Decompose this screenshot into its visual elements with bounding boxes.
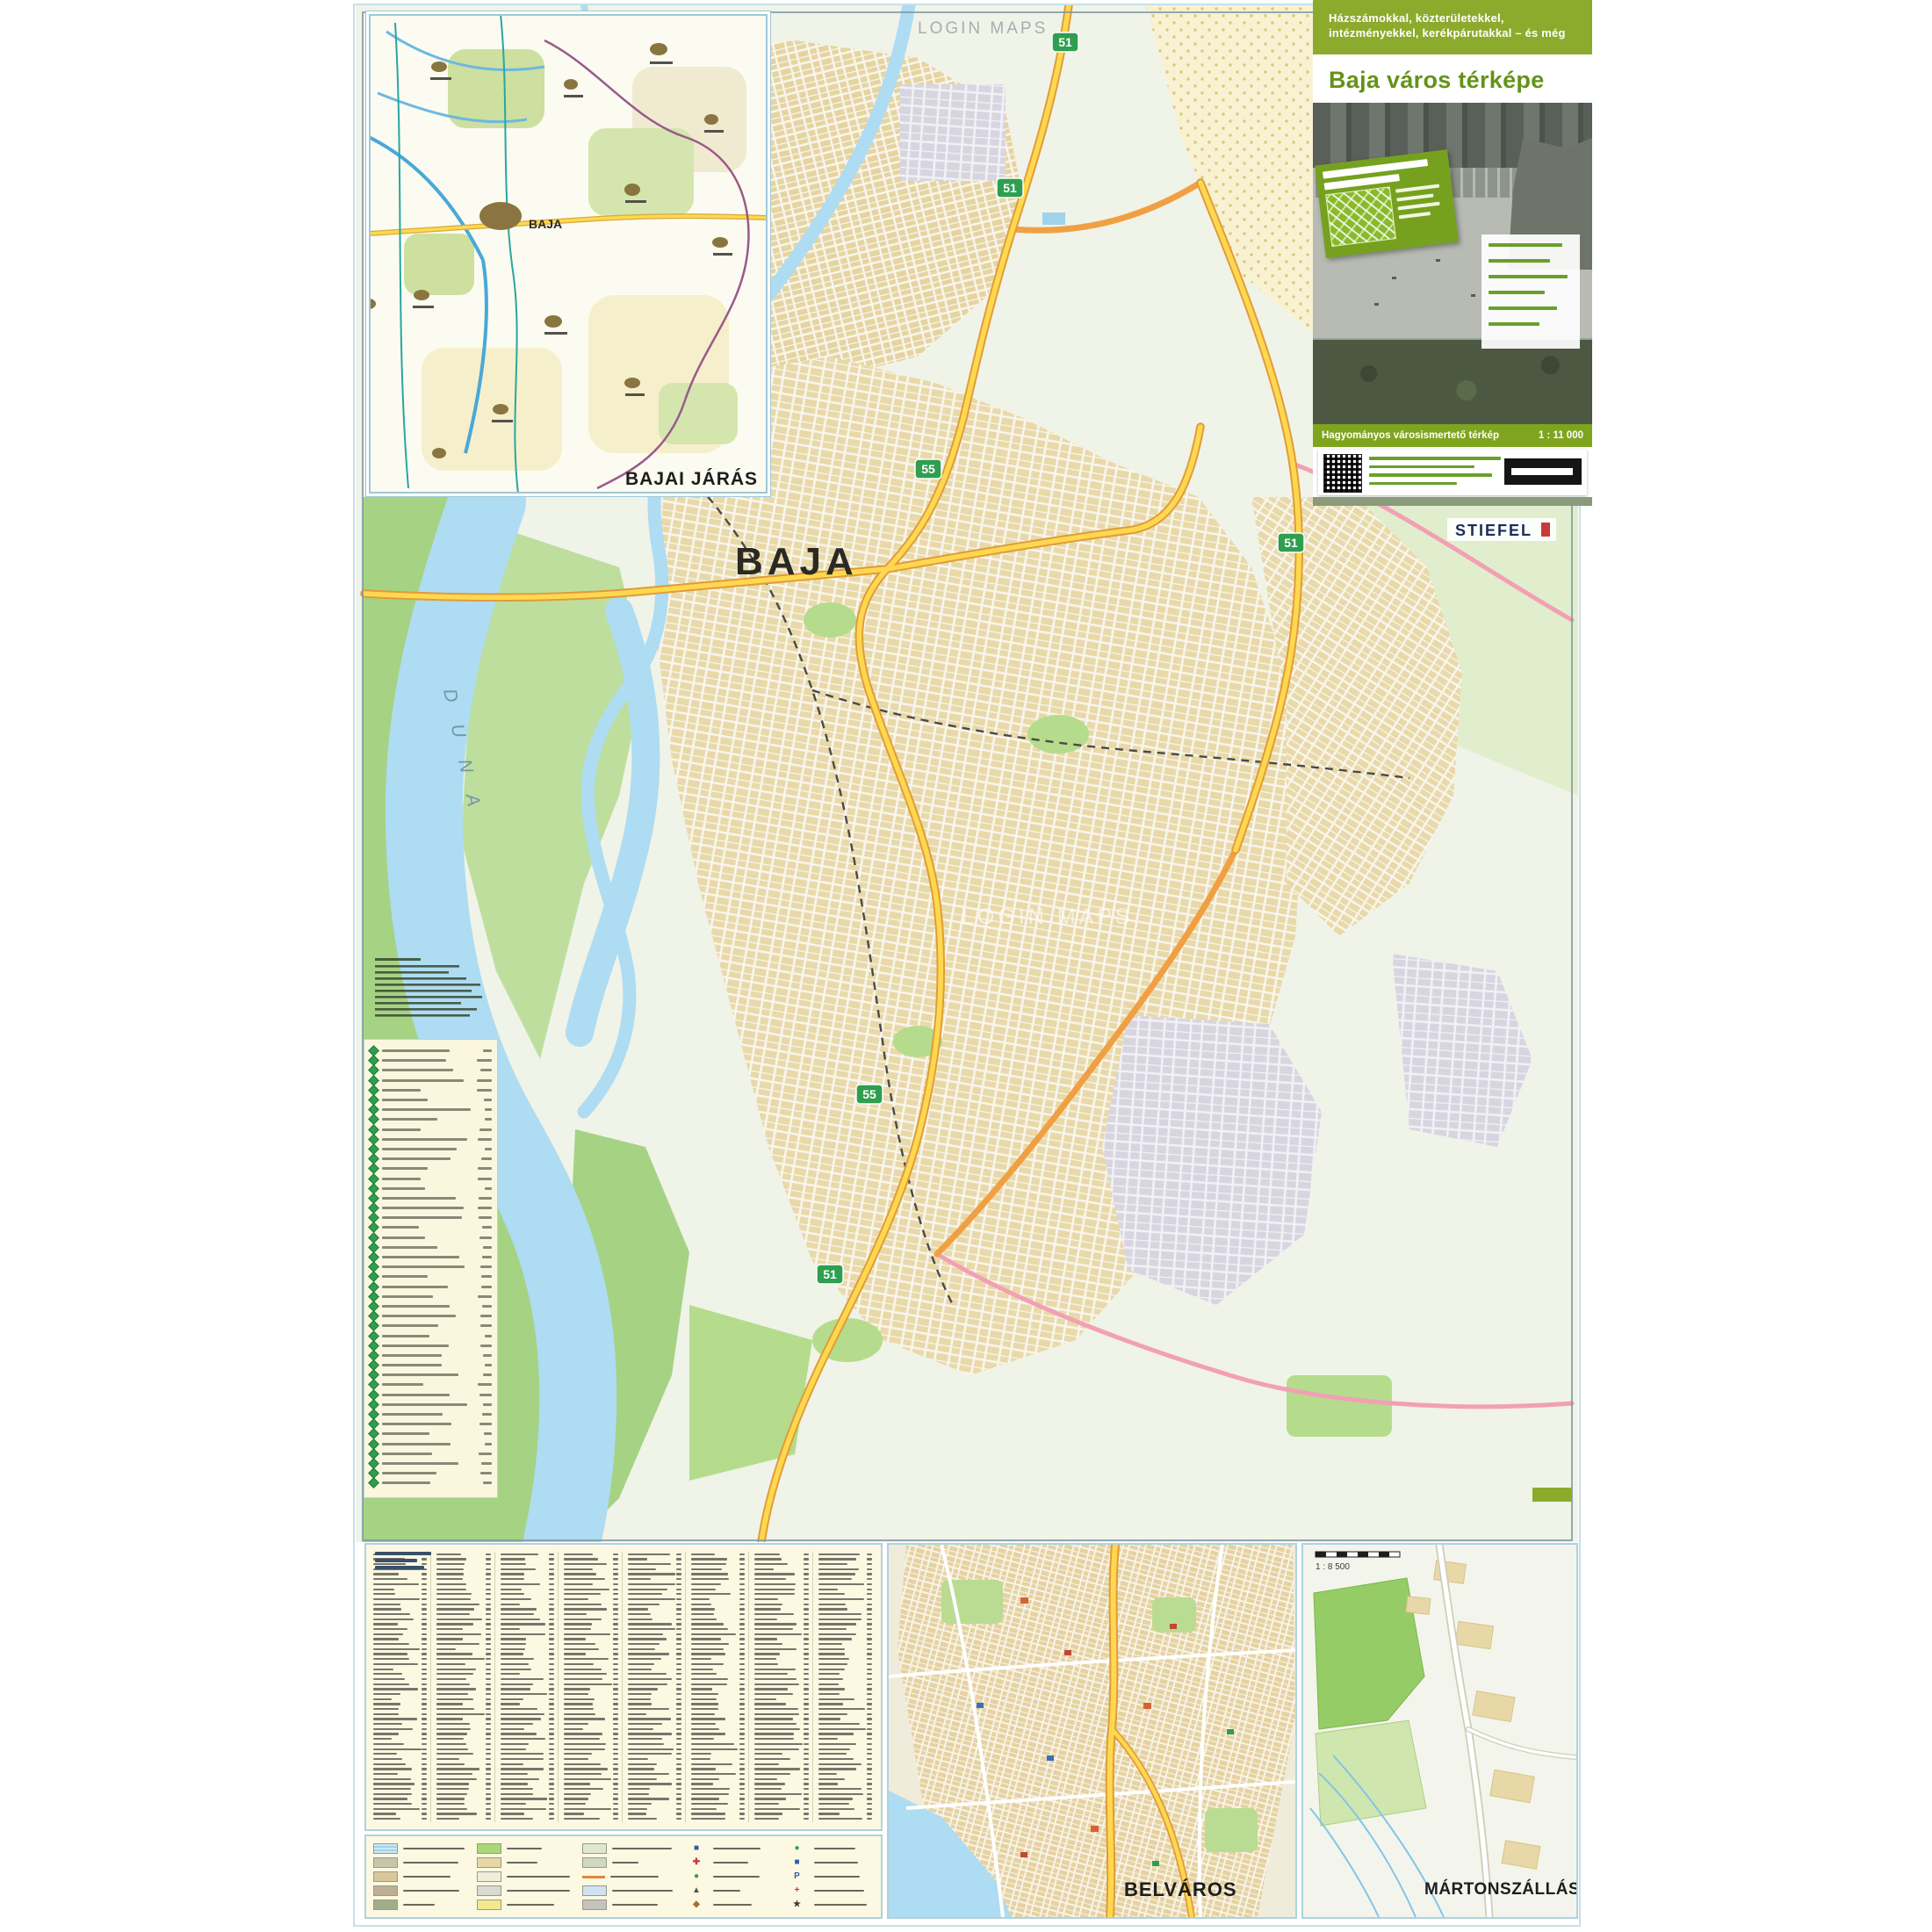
poi-grid-ref — [478, 1295, 492, 1298]
legend-area-swatch — [373, 1871, 398, 1882]
poi-row — [370, 1459, 492, 1468]
publisher-logo: STIEFEL — [1447, 518, 1556, 541]
poi-name-bar — [382, 1432, 429, 1435]
poi-row — [370, 1429, 492, 1438]
index-line — [691, 1816, 745, 1821]
index-column — [501, 1552, 559, 1822]
poi-name-bar — [382, 1118, 437, 1121]
poi-name-bar — [382, 1226, 419, 1229]
poi-row — [370, 1419, 492, 1429]
poi-grid-ref — [479, 1423, 492, 1425]
legend-row: ✚ — [685, 1856, 774, 1869]
index-column — [754, 1552, 812, 1822]
legend-row — [373, 1856, 465, 1869]
legend-label-bar — [612, 1848, 672, 1850]
poi-name-bar — [382, 1413, 443, 1416]
poi-rows — [370, 1046, 492, 1488]
poi-grid-ref — [478, 1167, 492, 1170]
legend-label-bar — [403, 1890, 459, 1892]
promo-map-motif — [1325, 186, 1396, 247]
legend-label-bar — [507, 1876, 570, 1878]
poi-grid-ref — [479, 1236, 492, 1239]
poi-row — [370, 1478, 492, 1488]
aerial-photo — [1313, 103, 1592, 424]
legend-row — [477, 1871, 570, 1883]
legend-row — [477, 1856, 570, 1869]
poi-grid-ref — [477, 1089, 492, 1092]
legend-label-bar — [403, 1848, 465, 1850]
publisher-logo-black — [1504, 458, 1582, 485]
legend-label-bar — [713, 1876, 760, 1878]
legend-area-swatch — [582, 1900, 607, 1910]
belvaros-inset-map: BELVÁROS — [889, 1545, 1295, 1917]
index-column — [818, 1552, 876, 1822]
poi-grid-ref — [481, 1286, 492, 1288]
legend-symbol-icon: ● — [685, 1872, 708, 1881]
poi-grid-ref — [479, 1216, 492, 1219]
poi-name-bar — [382, 1207, 464, 1209]
poi-name-bar — [382, 1423, 451, 1425]
poi-name-bar — [382, 1364, 442, 1366]
index-line — [373, 1816, 427, 1821]
legend-row — [582, 1885, 673, 1897]
poi-name-bar — [382, 1246, 437, 1249]
poi-row — [370, 1203, 492, 1213]
poi-grid-ref — [481, 1462, 492, 1465]
street-index-columns — [373, 1552, 876, 1822]
poi-grid-ref — [483, 1373, 492, 1376]
poi-row — [370, 1311, 492, 1321]
legend-group — [582, 1842, 673, 1911]
poi-row — [370, 1065, 492, 1075]
poi-grid-ref — [480, 1069, 492, 1071]
scale-value: 1 : 11 000 — [1539, 424, 1583, 447]
map-product-image: 51 51 55 51 55 51 — [0, 0, 1932, 1932]
legend-symbol-icon: ● — [786, 1844, 809, 1853]
poi-grid-ref — [479, 1394, 492, 1396]
watermark-text-2: LOGIN MAPS — [962, 905, 1134, 929]
poi-name-bar — [382, 1138, 467, 1141]
poi-grid-ref — [483, 1481, 492, 1484]
poi-grid-ref — [479, 1453, 492, 1455]
poi-name-bar — [382, 1148, 457, 1150]
legend-row: P — [786, 1871, 875, 1883]
poi-row — [370, 1105, 492, 1114]
poi-row — [370, 1114, 492, 1124]
legend-symbol-icon: ■ — [786, 1858, 809, 1867]
poi-name-bar — [382, 1256, 459, 1258]
index-line — [754, 1816, 808, 1821]
legend-row — [477, 1885, 570, 1897]
legend-group — [477, 1842, 570, 1911]
poi-grid-ref — [477, 1059, 492, 1062]
poi-grid-ref — [482, 1413, 492, 1416]
legend-row — [373, 1885, 465, 1897]
index-column — [436, 1552, 494, 1822]
poi-grid-ref — [480, 1324, 492, 1327]
street-index-header — [375, 1552, 436, 1573]
poi-grid-ref — [480, 1315, 492, 1317]
poi-name-bar — [382, 1354, 442, 1357]
regional-inset-title: BAJAI JÁRÁS — [625, 469, 758, 489]
legend-area-swatch — [373, 1885, 398, 1896]
legend-label-bar — [507, 1848, 542, 1850]
poi-row — [370, 1164, 492, 1173]
poi-grid-ref — [480, 1344, 492, 1347]
poi-grid-ref — [485, 1118, 492, 1121]
poi-row — [370, 1243, 492, 1252]
legend-symbol-icon: P — [786, 1872, 809, 1881]
poi-row — [370, 1173, 492, 1183]
legend-label-bar — [507, 1862, 537, 1864]
poi-row — [370, 1085, 492, 1095]
legend-label-bar — [507, 1890, 570, 1892]
legend-label-bar — [713, 1862, 748, 1864]
poi-row — [370, 1370, 492, 1380]
poi-name-bar — [382, 1099, 428, 1101]
legend-row — [477, 1899, 570, 1911]
index-column — [628, 1552, 686, 1822]
legend-row — [582, 1871, 673, 1883]
poi-name-bar — [382, 1373, 458, 1376]
route-shield: 51 — [1278, 533, 1304, 552]
poi-row — [370, 1076, 492, 1085]
poi-grid-ref — [482, 1305, 492, 1308]
poi-grid-ref — [483, 1246, 492, 1249]
poi-name-bar — [382, 1403, 467, 1406]
legend-label-bar — [403, 1904, 435, 1907]
poi-grid-ref — [478, 1178, 492, 1180]
legend-label-bar — [507, 1904, 554, 1907]
map-title: Baja város térképe — [1329, 67, 1583, 94]
legend-label-bar — [713, 1848, 761, 1850]
poi-name-bar — [382, 1089, 421, 1092]
legend-row: ★ — [786, 1899, 875, 1911]
legend-label-bar — [610, 1876, 659, 1878]
legend-row — [582, 1899, 673, 1911]
street-index-panel — [364, 1543, 883, 1831]
poi-row — [370, 1439, 492, 1449]
legend-area-swatch — [582, 1857, 607, 1868]
poi-row — [370, 1046, 492, 1056]
legend-symbol-icon: ■ — [685, 1844, 708, 1853]
legend-row — [582, 1856, 673, 1869]
poi-row — [370, 1262, 492, 1272]
svg-text:51: 51 — [1284, 536, 1298, 550]
poi-name-bar — [382, 1187, 425, 1190]
legend-label-bar — [612, 1862, 638, 1864]
poi-row — [370, 1321, 492, 1330]
legend-symbol-icon: ✚ — [685, 1858, 708, 1867]
poi-grid-ref — [485, 1364, 492, 1366]
route-shield: 51 — [997, 178, 1023, 198]
poi-grid-ref — [484, 1432, 492, 1435]
poi-grid-ref — [477, 1079, 492, 1082]
poi-grid-ref — [478, 1207, 492, 1209]
poi-name-bar — [382, 1462, 458, 1465]
index-column — [691, 1552, 749, 1822]
legend-label-bar — [814, 1876, 860, 1878]
watermark-text: LOGIN MAPS — [918, 19, 1048, 38]
legend-label-bar — [814, 1890, 864, 1892]
poi-grid-ref — [478, 1383, 492, 1386]
legend-area-swatch — [477, 1871, 501, 1882]
poi-name-bar — [382, 1324, 438, 1327]
legend-label-bar — [814, 1848, 855, 1850]
legend-label-bar — [612, 1904, 658, 1907]
poi-name-bar — [382, 1295, 433, 1298]
index-line — [564, 1816, 617, 1821]
header-subtitle-line1: Házszámokkal, közterületekkel, — [1329, 11, 1592, 25]
poi-row — [370, 1351, 492, 1360]
contact-lines — [1369, 457, 1501, 490]
poi-grid-ref — [483, 1049, 492, 1052]
poi-row — [370, 1154, 492, 1164]
index-line — [501, 1816, 554, 1821]
regional-inset-map: BAJA BAJAI JÁRÁS — [369, 14, 768, 494]
poi-grid-ref — [483, 1403, 492, 1406]
poi-name-bar — [382, 1275, 428, 1278]
poi-grid-ref — [485, 1443, 492, 1445]
poi-grid-ref — [481, 1157, 492, 1160]
legend-symbol-icon: ★ — [786, 1900, 809, 1909]
poi-name-bar — [382, 1453, 432, 1455]
legend-row — [373, 1842, 465, 1855]
poi-row — [370, 1341, 492, 1351]
poi-row — [370, 1056, 492, 1065]
index-column — [373, 1552, 431, 1822]
legend-water-swatch — [373, 1843, 398, 1854]
legend-symbol-icon: ▲ — [685, 1886, 708, 1895]
poi-grid-ref — [481, 1275, 492, 1278]
title-panel: Házszámokkal, közterületekkel, intézmény… — [1313, 0, 1592, 506]
poi-row — [370, 1409, 492, 1419]
poi-grid-ref — [485, 1148, 492, 1150]
poi-grid-ref — [485, 1335, 492, 1337]
poi-grid-ref — [480, 1265, 492, 1268]
poi-row — [370, 1380, 492, 1389]
legend-label-bar — [814, 1862, 858, 1864]
legend-panel: ■✚●▲◆●■P+★ — [364, 1835, 883, 1919]
svg-text:51: 51 — [1058, 35, 1072, 49]
promo-text-lines — [1395, 184, 1445, 224]
poi-row — [370, 1184, 492, 1193]
poi-name-bar — [382, 1197, 456, 1200]
martonszallas-inset-map: 1 : 8 500 MÁRTONSZÁLLÁS — [1303, 1545, 1576, 1917]
index-line — [818, 1816, 872, 1821]
route-shield: 55 — [915, 459, 941, 479]
legend-label-bar — [713, 1890, 740, 1892]
legend-label-bar — [403, 1862, 458, 1864]
legend-label-bar — [814, 1904, 867, 1907]
poi-name-bar — [382, 1167, 428, 1170]
legend-row — [373, 1899, 465, 1911]
legend-group — [373, 1842, 465, 1911]
poi-name-bar — [382, 1178, 421, 1180]
poi-row — [370, 1360, 492, 1370]
poi-row — [370, 1144, 492, 1154]
belvaros-title: BELVÁROS — [1124, 1878, 1237, 1900]
photo-bottom-strip — [1313, 497, 1592, 506]
legend-row: ◆ — [685, 1899, 774, 1911]
martonszallas-inset-panel: 1 : 8 500 MÁRTONSZÁLLÁS — [1301, 1543, 1578, 1919]
poi-name-bar — [382, 1079, 464, 1082]
poi-row — [370, 1390, 492, 1400]
poi-name-bar — [382, 1383, 423, 1386]
legend-row: ■ — [685, 1842, 774, 1855]
screenshot-root: { "page": {"background": "#ffffff"}, "re… — [0, 0, 1932, 1932]
poi-row — [370, 1252, 492, 1262]
poi-row — [370, 1468, 492, 1478]
legend-label-bar — [713, 1904, 752, 1907]
legend-row — [582, 1842, 673, 1855]
poi-row — [370, 1135, 492, 1144]
poi-grid-ref — [482, 1256, 492, 1258]
poi-name-bar — [382, 1394, 450, 1396]
poi-grid-ref — [480, 1472, 492, 1474]
route-shield: 51 — [1052, 32, 1078, 52]
poi-row — [370, 1233, 492, 1243]
title-panel-header: Házszámokkal, közterületekkel, intézmény… — [1313, 0, 1592, 54]
marton-scale-text: 1 : 8 500 — [1316, 1562, 1350, 1572]
poi-row — [370, 1272, 492, 1281]
poi-row — [370, 1282, 492, 1292]
poi-name-bar — [382, 1315, 456, 1317]
poi-grid-ref — [483, 1354, 492, 1357]
poi-grid-ref — [479, 1128, 492, 1131]
svg-text:STIEFEL: STIEFEL — [1455, 522, 1532, 539]
poi-name-bar — [382, 1108, 471, 1111]
scale-strip-text: Hagyományos városismertető térkép — [1322, 430, 1499, 441]
promo-title-bar — [1323, 159, 1428, 179]
route-shield: 55 — [856, 1085, 883, 1104]
svg-text:55: 55 — [862, 1087, 876, 1101]
basin — [1042, 213, 1065, 225]
poi-grid-ref — [484, 1099, 492, 1101]
promo-card — [1315, 149, 1459, 258]
legend-label-bar — [403, 1876, 451, 1878]
poi-name-bar — [382, 1305, 450, 1308]
poi-grid-ref — [478, 1138, 492, 1141]
header-subtitle-line2: intézményekkel, kerékpárutakkal – és még — [1329, 25, 1592, 40]
legend-area-swatch — [477, 1843, 501, 1854]
legend-area-swatch — [477, 1900, 501, 1910]
poi-grid-ref — [485, 1108, 492, 1111]
legend-area-swatch — [477, 1857, 501, 1868]
legend-row: ● — [685, 1871, 774, 1883]
legend-symbol-icon: + — [786, 1886, 809, 1895]
poi-row — [370, 1330, 492, 1340]
legend-road-sample — [582, 1876, 605, 1878]
poi-marker-icon — [368, 1477, 379, 1489]
legend-row: ■ — [786, 1856, 875, 1869]
poi-name-bar — [382, 1157, 451, 1160]
poi-index-panel — [364, 1039, 498, 1498]
poi-name-bar — [382, 1472, 436, 1474]
legend-row — [477, 1842, 570, 1855]
legend-area-swatch — [582, 1885, 607, 1896]
edge-green-mark — [1532, 1488, 1572, 1502]
regional-inset-panel: BAJA BAJAI JÁRÁS — [365, 11, 771, 497]
legend-area-swatch — [477, 1885, 501, 1896]
qr-code — [1323, 454, 1362, 493]
poi-row — [370, 1292, 492, 1301]
poi-name-bar — [382, 1216, 462, 1219]
index-column — [564, 1552, 622, 1822]
legend-symbol-icon: ◆ — [685, 1900, 708, 1909]
photo-feature-list — [1481, 234, 1580, 349]
legend-label-bar — [612, 1890, 673, 1892]
poi-name-bar — [382, 1335, 429, 1337]
contact-infobox — [1318, 450, 1587, 495]
poi-name-bar — [382, 1344, 449, 1347]
index-line — [628, 1816, 681, 1821]
poi-row — [370, 1125, 492, 1135]
svg-text:51: 51 — [823, 1267, 837, 1281]
poi-name-bar — [382, 1069, 453, 1071]
legend-row: + — [786, 1885, 875, 1897]
legend-group: ■✚●▲◆ — [685, 1842, 774, 1911]
poi-name-bar — [382, 1128, 421, 1131]
poi-row — [370, 1213, 492, 1222]
poi-name-bar — [382, 1265, 465, 1268]
poi-name-bar — [382, 1059, 446, 1062]
index-line — [436, 1816, 490, 1821]
legend-row — [373, 1871, 465, 1883]
route-shield: 51 — [817, 1265, 843, 1284]
svg-text:51: 51 — [1003, 181, 1017, 195]
legend-area-swatch — [582, 1843, 607, 1854]
legend-group: ●■P+★ — [786, 1842, 875, 1911]
poi-row — [370, 1301, 492, 1311]
scale-strip: 1 : 11 000 Hagyományos városismertető té… — [1313, 424, 1592, 447]
legend-area-swatch — [373, 1857, 398, 1868]
svg-text:55: 55 — [921, 462, 935, 476]
poi-name-bar — [382, 1481, 430, 1484]
poi-name-bar — [382, 1236, 425, 1239]
belvaros-inset-panel: BELVÁROS — [887, 1543, 1297, 1919]
poi-row — [370, 1222, 492, 1232]
poi-grid-ref — [482, 1226, 492, 1229]
poi-row — [370, 1193, 492, 1203]
legend-row: ▲ — [685, 1885, 774, 1897]
legend-row: ● — [786, 1842, 875, 1855]
poi-name-bar — [382, 1443, 451, 1445]
photo-trees — [1313, 340, 1592, 424]
poi-name-bar — [382, 1286, 448, 1288]
martonszallas-title: MÁRTONSZÁLLÁS — [1424, 1879, 1576, 1899]
poi-row — [370, 1449, 492, 1459]
poi-grid-ref — [485, 1187, 492, 1190]
poi-name-bar — [382, 1049, 450, 1052]
city-name-label: BAJA — [735, 540, 858, 583]
legend-area-swatch — [373, 1900, 398, 1910]
poi-row — [370, 1400, 492, 1409]
poi-row — [370, 1095, 492, 1105]
regional-city-label: BAJA — [529, 217, 562, 231]
poi-grid-ref — [479, 1197, 492, 1200]
